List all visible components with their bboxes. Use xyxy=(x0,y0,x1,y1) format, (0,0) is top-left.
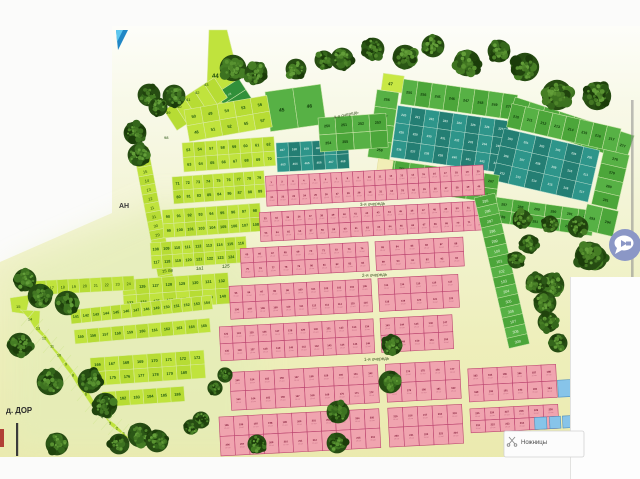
svg-text:15 сот: 15 сот xyxy=(294,380,299,382)
svg-text:15 сот: 15 сот xyxy=(298,292,303,294)
svg-text:11: 11 xyxy=(50,344,54,349)
svg-text:15 сот: 15 сот xyxy=(296,269,301,271)
svg-text:151: 151 xyxy=(429,339,434,342)
svg-text:15 сот: 15 сот xyxy=(488,377,493,379)
svg-text:15 сот: 15 сот xyxy=(517,376,522,378)
svg-text:15 сот: 15 сот xyxy=(476,174,481,176)
svg-text:99: 99 xyxy=(167,229,172,233)
svg-text:160: 160 xyxy=(339,374,344,377)
svg-text:15 сот: 15 сот xyxy=(362,289,367,291)
svg-text:15 сот: 15 сот xyxy=(436,391,441,393)
svg-text:154: 154 xyxy=(250,378,255,381)
svg-text:15 сот: 15 сот xyxy=(250,382,255,384)
svg-text:15 сот: 15 сот xyxy=(253,426,258,428)
svg-text:15 сот: 15 сот xyxy=(339,330,344,332)
svg-text:15 сот: 15 сот xyxy=(283,255,288,257)
svg-text:162: 162 xyxy=(368,372,373,375)
svg-text:144: 144 xyxy=(340,343,345,346)
svg-text:15 сот: 15 сот xyxy=(503,393,508,395)
svg-text:158: 158 xyxy=(115,331,121,336)
svg-text:15 сот: 15 сот xyxy=(312,308,317,310)
svg-text:15 сот: 15 сот xyxy=(309,379,314,381)
svg-text:63: 63 xyxy=(187,162,192,166)
svg-text:15 сот: 15 сот xyxy=(225,447,230,449)
svg-text:15 сот: 15 сот xyxy=(421,392,426,394)
svg-text:15 сот: 15 сот xyxy=(300,332,305,334)
svg-text:15 сот: 15 сот xyxy=(520,425,525,427)
svg-text:228: 228 xyxy=(519,410,524,413)
svg-text:141: 141 xyxy=(302,345,307,348)
svg-text:15 сот: 15 сот xyxy=(369,395,374,397)
svg-text:15 сот: 15 сот xyxy=(271,270,276,272)
svg-text:15 сот: 15 сот xyxy=(433,191,438,193)
svg-text:290: 290 xyxy=(550,209,556,214)
svg-text:15 сот: 15 сот xyxy=(429,343,434,345)
svg-text:15 сот: 15 сот xyxy=(432,212,437,214)
svg-text:109: 109 xyxy=(163,246,170,250)
svg-text:15 сот: 15 сот xyxy=(297,424,302,426)
svg-text:12: 12 xyxy=(148,196,153,202)
svg-text:15 сот: 15 сот xyxy=(385,328,390,330)
svg-text:15 сот: 15 сот xyxy=(324,291,329,293)
svg-text:15 сот: 15 сот xyxy=(224,336,229,338)
svg-text:15 сот: 15 сот xyxy=(276,351,281,353)
svg-text:180: 180 xyxy=(422,388,427,391)
svg-text:15 сот: 15 сот xyxy=(490,415,495,417)
svg-text:15 сот: 15 сот xyxy=(410,177,415,179)
svg-text:15 сот: 15 сот xyxy=(548,412,553,414)
svg-text:159: 159 xyxy=(324,374,329,377)
svg-text:15 сот: 15 сот xyxy=(448,284,453,286)
svg-text:83: 83 xyxy=(197,194,202,198)
svg-text:254: 254 xyxy=(325,141,331,145)
svg-text:20: 20 xyxy=(83,284,87,288)
svg-text:15 сот: 15 сот xyxy=(246,295,251,297)
svg-text:15 сот: 15 сот xyxy=(388,178,393,180)
svg-text:15 сот: 15 сот xyxy=(473,378,478,380)
svg-text:18: 18 xyxy=(61,285,65,289)
svg-text:15 сот: 15 сот xyxy=(455,211,460,213)
svg-text:91: 91 xyxy=(177,214,182,218)
svg-text:9: 9 xyxy=(65,362,67,367)
svg-text:13: 13 xyxy=(146,187,151,193)
svg-text:90: 90 xyxy=(166,215,171,219)
svg-text:222: 222 xyxy=(429,117,435,122)
svg-text:15 сот: 15 сот xyxy=(251,401,256,403)
svg-text:163: 163 xyxy=(236,398,241,401)
svg-text:175: 175 xyxy=(421,369,426,372)
svg-text:233: 233 xyxy=(505,422,510,425)
svg-text:15 сот: 15 сот xyxy=(295,399,300,401)
svg-text:15 сот: 15 сот xyxy=(416,286,421,288)
svg-text:15 сот: 15 сот xyxy=(532,375,537,377)
svg-text:225: 225 xyxy=(470,123,476,128)
svg-text:85: 85 xyxy=(207,193,212,197)
svg-text:119: 119 xyxy=(175,259,181,263)
svg-text:15 сот: 15 сот xyxy=(325,307,330,309)
svg-text:15 сот: 15 сот xyxy=(250,352,255,354)
svg-text:142: 142 xyxy=(315,345,320,348)
svg-text:123: 123 xyxy=(224,332,229,335)
svg-text:15 сот: 15 сот xyxy=(465,189,470,191)
svg-text:171: 171 xyxy=(165,357,173,362)
svg-text:140: 140 xyxy=(219,293,226,298)
svg-text:170: 170 xyxy=(151,358,158,363)
svg-text:15 сот: 15 сот xyxy=(301,183,306,185)
svg-text:15 сот: 15 сот xyxy=(435,372,440,374)
svg-text:15 сот: 15 сот xyxy=(396,263,401,265)
svg-text:15 сот: 15 сот xyxy=(289,350,294,352)
svg-text:175: 175 xyxy=(109,375,117,380)
svg-text:464: 464 xyxy=(293,162,299,166)
svg-text:15 сот: 15 сот xyxy=(385,304,390,306)
svg-text:15 сот: 15 сот xyxy=(443,176,448,178)
svg-text:24: 24 xyxy=(127,282,131,286)
svg-text:148: 148 xyxy=(143,307,150,312)
svg-text:15 сот: 15 сот xyxy=(247,311,252,313)
svg-text:252: 252 xyxy=(358,122,364,126)
svg-text:15 сот: 15 сот xyxy=(284,269,289,271)
svg-text:15 сот: 15 сот xyxy=(285,293,290,295)
svg-text:255: 255 xyxy=(342,140,348,144)
svg-text:15 сот: 15 сот xyxy=(236,336,241,338)
svg-text:15 сот: 15 сот xyxy=(309,268,314,270)
svg-text:15 сот: 15 сот xyxy=(368,195,373,197)
svg-text:73: 73 xyxy=(196,180,201,184)
svg-text:128: 128 xyxy=(165,282,173,287)
svg-text:15 сот: 15 сот xyxy=(296,254,301,256)
svg-text:46: 46 xyxy=(306,103,313,110)
svg-text:15 сот: 15 сот xyxy=(414,326,419,328)
svg-text:15 сот: 15 сот xyxy=(301,349,306,351)
svg-text:96: 96 xyxy=(231,210,236,214)
svg-text:15 сот: 15 сот xyxy=(312,182,317,184)
svg-text:467: 467 xyxy=(328,160,334,164)
svg-text:101: 101 xyxy=(187,227,194,231)
svg-text:65: 65 xyxy=(210,161,215,165)
svg-text:15 сот: 15 сот xyxy=(453,435,458,437)
svg-text:15 сот: 15 сот xyxy=(370,439,375,441)
svg-text:15 сот: 15 сот xyxy=(354,396,359,398)
svg-text:177: 177 xyxy=(138,373,145,378)
svg-text:15 сот: 15 сот xyxy=(320,232,325,234)
svg-text:174: 174 xyxy=(406,370,411,373)
svg-text:89: 89 xyxy=(258,189,263,193)
svg-text:75: 75 xyxy=(216,179,221,183)
svg-text:15 сот: 15 сот xyxy=(354,231,359,233)
svg-text:15 сот: 15 сот xyxy=(534,413,539,415)
svg-text:15 сот: 15 сот xyxy=(439,247,444,249)
svg-text:143: 143 xyxy=(93,312,100,317)
svg-text:15 сот: 15 сот xyxy=(297,233,302,235)
svg-text:66: 66 xyxy=(221,160,226,164)
svg-text:15 сот: 15 сот xyxy=(425,262,430,264)
svg-text:115: 115 xyxy=(227,242,233,246)
svg-text:67: 67 xyxy=(233,159,238,163)
svg-text:178: 178 xyxy=(152,372,160,377)
svg-text:155: 155 xyxy=(78,334,84,339)
svg-text:21: 21 xyxy=(94,284,98,288)
svg-text:161: 161 xyxy=(354,373,359,376)
svg-text:124: 124 xyxy=(237,332,242,335)
svg-text:15 сот: 15 сот xyxy=(290,184,295,186)
svg-text:1а1: 1а1 xyxy=(196,265,204,271)
svg-text:78: 78 xyxy=(247,177,252,181)
svg-text:237: 237 xyxy=(410,149,416,154)
svg-text:15 сот: 15 сот xyxy=(313,332,318,334)
svg-text:15 сот: 15 сот xyxy=(330,217,335,219)
svg-text:15 сот: 15 сот xyxy=(334,252,339,254)
svg-text:145: 145 xyxy=(414,323,419,326)
svg-text:169: 169 xyxy=(325,393,330,396)
svg-text:15 сот: 15 сот xyxy=(324,197,329,199)
svg-text:146: 146 xyxy=(123,309,130,314)
svg-text:15 сот: 15 сот xyxy=(244,257,249,259)
svg-text:146: 146 xyxy=(366,342,371,345)
svg-text:15 сот: 15 сот xyxy=(337,290,342,292)
svg-text:225: 225 xyxy=(475,412,480,415)
svg-text:15 сот: 15 сот xyxy=(475,416,480,418)
svg-text:15 сот: 15 сот xyxy=(263,221,268,223)
svg-text:151: 151 xyxy=(173,304,180,309)
svg-text:15 сот: 15 сот xyxy=(376,229,381,231)
svg-text:239: 239 xyxy=(438,153,444,158)
svg-text:245: 245 xyxy=(434,94,440,99)
svg-text:15 сот: 15 сот xyxy=(367,180,372,182)
svg-text:172: 172 xyxy=(179,356,187,361)
svg-text:15 сот: 15 сот xyxy=(399,178,404,180)
svg-text:43: 43 xyxy=(204,82,209,87)
svg-text:15 сот: 15 сот xyxy=(454,175,459,177)
svg-text:77: 77 xyxy=(236,177,241,181)
svg-text:3: 3 xyxy=(109,421,111,426)
svg-text:15 сот: 15 сот xyxy=(411,192,416,194)
svg-text:15 сот: 15 сот xyxy=(380,250,385,252)
svg-text:250: 250 xyxy=(324,124,330,128)
svg-text:15 сот: 15 сот xyxy=(532,391,537,393)
svg-text:176: 176 xyxy=(124,374,132,379)
svg-text:129: 129 xyxy=(301,328,306,331)
svg-text:15 сот: 15 сот xyxy=(505,426,510,428)
svg-text:15 сот: 15 сот xyxy=(353,377,358,379)
svg-text:166: 166 xyxy=(94,362,102,367)
svg-text:15 сот: 15 сот xyxy=(365,329,370,331)
svg-text:132: 132 xyxy=(218,278,226,283)
svg-text:136: 136 xyxy=(238,349,243,352)
svg-text:15 сот: 15 сот xyxy=(407,393,412,395)
svg-text:60: 60 xyxy=(243,144,248,148)
svg-text:15 сот: 15 сот xyxy=(365,230,370,232)
svg-text:15 сот: 15 сот xyxy=(343,231,348,233)
svg-text:465: 465 xyxy=(304,161,310,165)
svg-text:98: 98 xyxy=(253,209,258,213)
svg-text:15 сот: 15 сот xyxy=(409,437,414,439)
svg-text:97: 97 xyxy=(242,209,247,213)
svg-text:15 сот: 15 сот xyxy=(388,229,393,231)
svg-text:15 сот: 15 сот xyxy=(360,265,365,267)
svg-text:71: 71 xyxy=(175,182,180,186)
svg-text:157: 157 xyxy=(294,376,299,379)
svg-text:233: 233 xyxy=(468,140,474,145)
svg-text:15 сот: 15 сот xyxy=(342,217,347,219)
svg-text:15 сот: 15 сот xyxy=(502,376,507,378)
svg-text:13: 13 xyxy=(36,326,40,331)
svg-text:15 сот: 15 сот xyxy=(387,214,392,216)
svg-text:15 сот: 15 сот xyxy=(331,232,336,234)
svg-text:15 сот: 15 сот xyxy=(454,260,459,262)
svg-text:15 сот: 15 сот xyxy=(394,438,399,440)
svg-text:15 сот: 15 сот xyxy=(376,215,381,217)
svg-text:110: 110 xyxy=(174,246,180,250)
svg-text:259: 259 xyxy=(376,148,382,153)
svg-text:166: 166 xyxy=(281,396,286,399)
svg-text:131: 131 xyxy=(326,327,331,330)
svg-text:153: 153 xyxy=(235,379,240,382)
svg-text:15 сот: 15 сот xyxy=(409,213,414,215)
svg-text:121: 121 xyxy=(196,257,203,261)
svg-text:Ножницы: Ножницы xyxy=(521,440,547,446)
svg-text:107: 107 xyxy=(242,223,249,227)
svg-text:467: 467 xyxy=(280,148,286,152)
svg-text:81: 81 xyxy=(186,194,191,198)
svg-text:186: 186 xyxy=(174,391,182,396)
svg-text:15 сот: 15 сот xyxy=(406,374,411,376)
svg-text:15 сот: 15 сот xyxy=(340,347,345,349)
svg-text:22: 22 xyxy=(105,283,109,287)
svg-text:15 сот: 15 сот xyxy=(428,326,433,328)
svg-text:15 сот: 15 сот xyxy=(353,347,358,349)
svg-text:15 сот: 15 сот xyxy=(546,374,551,376)
svg-text:15 сот: 15 сот xyxy=(417,302,422,304)
svg-text:15 сот: 15 сот xyxy=(346,196,351,198)
svg-text:149: 149 xyxy=(153,306,160,311)
svg-text:15 сот: 15 сот xyxy=(319,218,324,220)
svg-text:133: 133 xyxy=(352,326,357,329)
svg-text:158: 158 xyxy=(309,375,314,378)
svg-text:62: 62 xyxy=(266,142,271,146)
svg-text:15 сот: 15 сот xyxy=(288,333,293,335)
svg-text:15 сот: 15 сот xyxy=(280,184,285,186)
svg-text:15 сот: 15 сот xyxy=(476,428,481,430)
svg-text:100: 100 xyxy=(176,228,183,232)
svg-text:15 сот: 15 сот xyxy=(280,399,285,401)
svg-text:15 сот: 15 сот xyxy=(421,177,426,179)
svg-text:15 сот: 15 сот xyxy=(393,419,398,421)
svg-text:15 сот: 15 сот xyxy=(384,288,389,290)
svg-text:134: 134 xyxy=(365,325,370,328)
svg-text:15 сот: 15 сот xyxy=(355,421,360,423)
svg-text:230: 230 xyxy=(426,134,432,139)
svg-text:181: 181 xyxy=(436,387,441,390)
svg-text:15 сот: 15 сот xyxy=(409,248,414,250)
svg-text:129: 129 xyxy=(179,281,187,286)
svg-text:156: 156 xyxy=(90,333,96,338)
svg-text:256: 256 xyxy=(384,97,390,102)
svg-text:15 сот: 15 сот xyxy=(423,417,428,419)
svg-text:177: 177 xyxy=(450,368,455,371)
svg-text:15 сот: 15 сот xyxy=(257,256,262,258)
svg-text:246: 246 xyxy=(449,96,455,101)
svg-text:86: 86 xyxy=(227,191,232,195)
svg-text:15 сот: 15 сот xyxy=(264,235,269,237)
svg-text:137: 137 xyxy=(250,348,255,351)
svg-text:15 сот: 15 сот xyxy=(378,194,383,196)
svg-text:59: 59 xyxy=(232,145,237,149)
svg-text:15 сот: 15 сот xyxy=(262,334,267,336)
svg-text:160: 160 xyxy=(139,329,145,334)
svg-text:130: 130 xyxy=(314,328,319,331)
svg-text:15 сот: 15 сот xyxy=(260,311,265,313)
svg-text:15 сот: 15 сот xyxy=(408,418,413,420)
svg-text:15 сот: 15 сот xyxy=(327,348,332,350)
svg-text:15 сот: 15 сот xyxy=(352,330,357,332)
svg-text:126: 126 xyxy=(139,283,147,288)
svg-text:15 сот: 15 сот xyxy=(269,185,274,187)
svg-text:15 сот: 15 сот xyxy=(312,442,317,444)
svg-text:184: 184 xyxy=(147,393,155,398)
svg-text:167: 167 xyxy=(108,361,115,366)
svg-text:106: 106 xyxy=(231,224,238,228)
svg-text:15 сот: 15 сот xyxy=(334,181,339,183)
svg-text:15 сот: 15 сот xyxy=(275,334,280,336)
svg-text:127: 127 xyxy=(275,330,280,333)
svg-text:221: 221 xyxy=(415,115,421,120)
svg-text:15 сот: 15 сот xyxy=(424,247,429,249)
svg-text:2: 2 xyxy=(116,426,118,431)
svg-text:15 сот: 15 сот xyxy=(422,227,427,229)
svg-text:179: 179 xyxy=(166,371,174,376)
svg-text:112: 112 xyxy=(195,244,201,248)
svg-text:227: 227 xyxy=(498,126,504,131)
svg-text:168: 168 xyxy=(123,360,131,365)
svg-text:15 сот: 15 сот xyxy=(349,289,354,291)
svg-text:39: 39 xyxy=(166,110,171,115)
svg-text:228: 228 xyxy=(399,130,405,135)
svg-text:165: 165 xyxy=(201,324,207,329)
svg-text:15 сот: 15 сот xyxy=(245,271,250,273)
svg-text:231: 231 xyxy=(476,424,481,427)
svg-text:142: 142 xyxy=(83,313,90,318)
svg-text:466: 466 xyxy=(316,160,322,164)
svg-text:15 сот: 15 сот xyxy=(453,246,458,248)
svg-text:80: 80 xyxy=(176,195,181,199)
svg-text:15 сот: 15 сот xyxy=(270,255,275,257)
svg-text:15 сот: 15 сот xyxy=(285,220,290,222)
svg-text:176: 176 xyxy=(435,368,440,371)
svg-text:156: 156 xyxy=(280,377,285,380)
svg-text:168: 168 xyxy=(310,394,315,397)
svg-text:15 сот: 15 сот xyxy=(392,394,397,396)
svg-text:223: 223 xyxy=(443,119,449,124)
svg-text:15 сот: 15 сот xyxy=(455,225,460,227)
svg-text:15 сот: 15 сот xyxy=(298,443,303,445)
svg-text:153: 153 xyxy=(194,302,201,307)
svg-text:15 сот: 15 сот xyxy=(444,342,449,344)
svg-text:180: 180 xyxy=(180,370,187,375)
svg-text:104: 104 xyxy=(209,226,216,230)
svg-text:15 сот: 15 сот xyxy=(269,445,274,447)
svg-text:169: 169 xyxy=(137,359,145,364)
svg-text:19: 19 xyxy=(72,285,76,289)
svg-text:15 сот: 15 сот xyxy=(309,233,314,235)
svg-text:468: 468 xyxy=(340,159,346,163)
svg-text:145: 145 xyxy=(113,310,120,315)
svg-text:15 сот: 15 сот xyxy=(326,331,331,333)
svg-text:15 сот: 15 сот xyxy=(518,392,523,394)
svg-text:79: 79 xyxy=(257,176,262,180)
svg-text:15 сот: 15 сот xyxy=(350,306,355,308)
svg-text:15 сот: 15 сот xyxy=(224,428,229,430)
